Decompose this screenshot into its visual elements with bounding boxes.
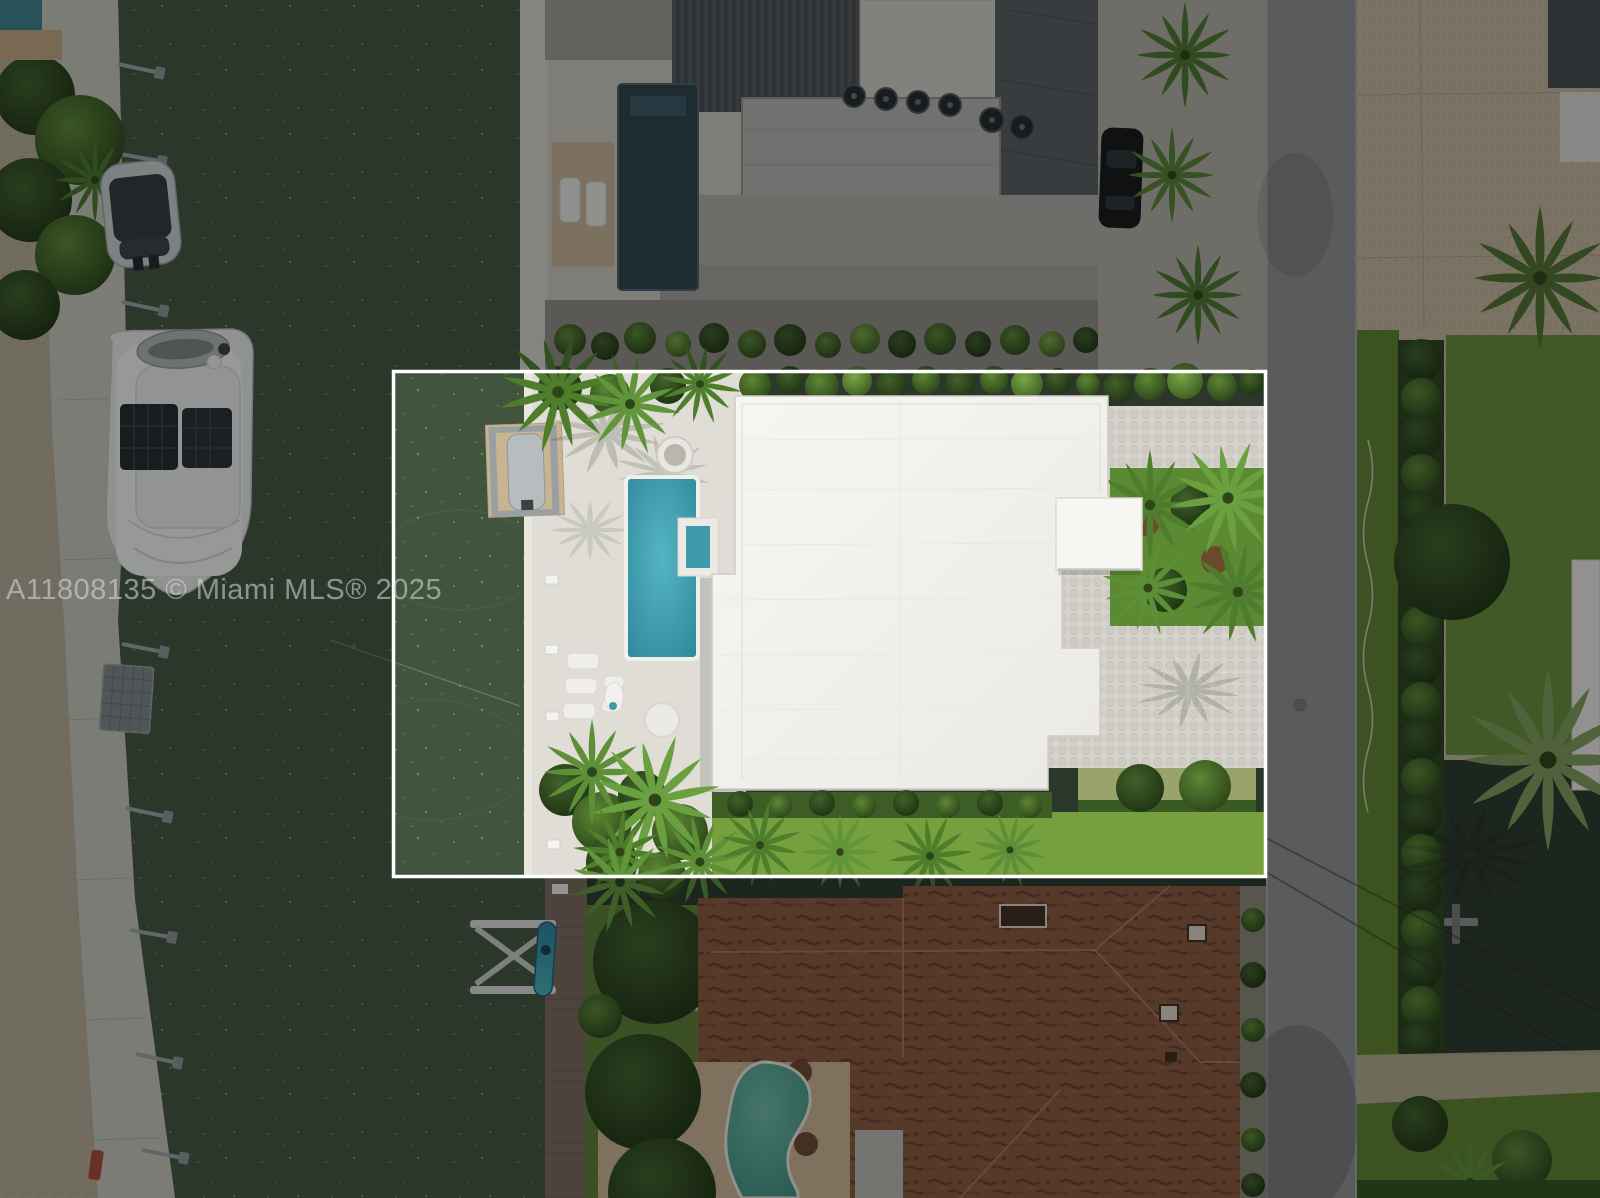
round-daybed (645, 703, 679, 737)
mls-watermark: A11808135 © Miami MLS® 2025 (6, 574, 442, 606)
roof (712, 396, 1108, 790)
aerial-photo: A11808135 © Miami MLS® 2025 (0, 0, 1600, 1198)
rear-hedge (712, 790, 1052, 818)
spa (678, 518, 718, 576)
entry-canopy (1056, 498, 1142, 570)
pool-float (605, 682, 623, 712)
boat-dock (485, 423, 564, 518)
subject-lot (485, 317, 1310, 925)
lifted-boat (507, 433, 546, 510)
lower-garden-strip (1078, 760, 1256, 814)
